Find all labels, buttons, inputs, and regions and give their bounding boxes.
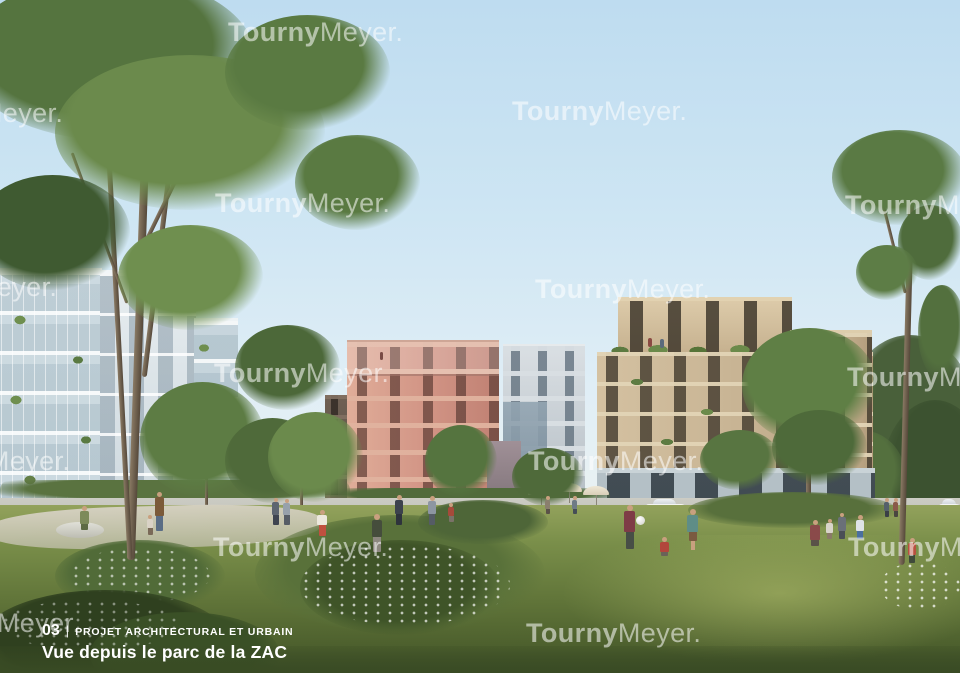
caption-line1: 03 | PROJET ARCHITECTURAL ET URBAIN <box>42 622 293 640</box>
girl-teal <box>687 509 698 550</box>
toddler-red <box>908 538 916 563</box>
kid-arms-up <box>317 510 327 536</box>
caption-title: Vue depuis le parc de la ZAC <box>42 642 293 663</box>
meadow-flowers <box>880 562 960 610</box>
caption-number: 03 <box>42 622 60 640</box>
walker <box>428 496 436 525</box>
caption-separator: | <box>66 623 69 638</box>
kid-dark <box>372 514 382 552</box>
cafe-guest <box>572 496 577 514</box>
sitting-woman <box>80 506 89 530</box>
child-red <box>448 503 454 522</box>
large-tree-foliage <box>235 325 340 410</box>
white-ball <box>636 516 645 525</box>
bush-flowers <box>300 545 510 625</box>
right-tree-foliage <box>856 245 918 300</box>
person-with-ball <box>624 505 635 549</box>
pink-building-top-floor <box>347 340 499 376</box>
right-tree-foliage <box>918 285 960 380</box>
walking-man <box>155 492 164 531</box>
walker <box>395 495 403 525</box>
rooftop-figure <box>380 352 383 360</box>
rooftop-figure <box>648 338 652 347</box>
small-child <box>147 515 153 535</box>
architectural-rendering: TournyMeyer.TournyMeyer.TournyMeyer.Tour… <box>0 0 960 673</box>
bush <box>688 492 898 528</box>
cafe-guest <box>545 496 550 514</box>
pedestrian <box>884 498 889 517</box>
caption-category: PROJET ARCHITECTURAL ET URBAIN <box>75 626 293 638</box>
rooftop-figure <box>660 339 664 348</box>
cafe-parasol <box>583 486 609 506</box>
large-tree-foliage <box>295 135 420 230</box>
tree-foliage <box>425 425 497 497</box>
tree-foliage <box>700 430 780 490</box>
large-tree-foliage <box>118 225 263 330</box>
child-blue <box>856 515 864 539</box>
pedestrian <box>838 513 846 539</box>
pedestrian <box>893 498 898 517</box>
large-tree-foliage <box>225 15 390 130</box>
tree-foliage <box>268 412 363 502</box>
sitting-child-red <box>660 537 669 556</box>
pedestrian <box>283 499 290 525</box>
small-child <box>826 519 833 539</box>
tree-foliage <box>772 410 867 485</box>
pedestrian <box>272 498 279 525</box>
bush <box>418 500 548 544</box>
kneeling-woman <box>810 520 820 546</box>
caption: 03 | PROJET ARCHITECTURAL ET URBAIN Vue … <box>42 622 293 663</box>
